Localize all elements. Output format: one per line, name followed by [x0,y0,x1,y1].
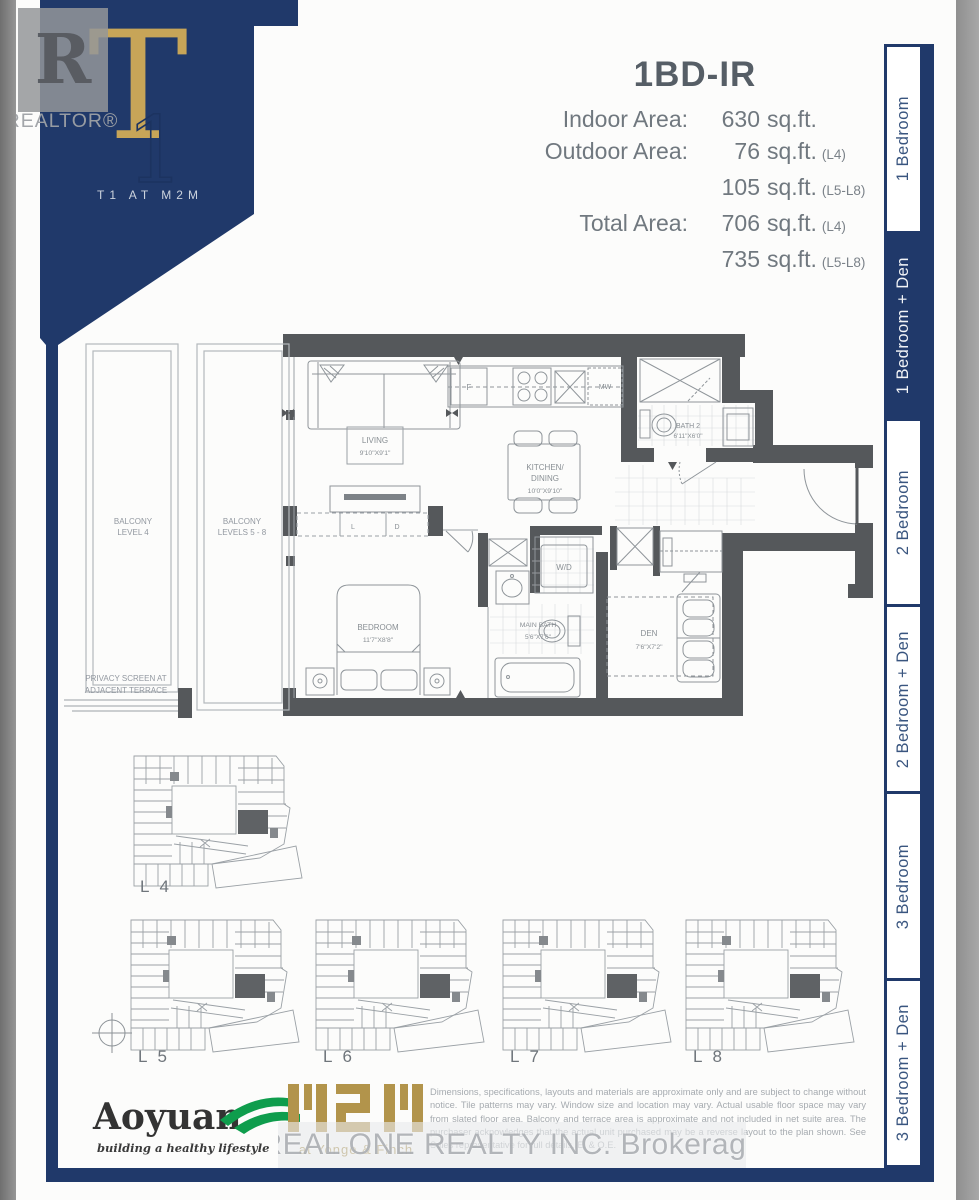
tab-3-bedroom[interactable]: 3 Bedroom [884,791,923,981]
svg-text:11'7"X8'8": 11'7"X8'8" [363,637,394,644]
realtor-label: REALTOR® [0,110,124,133]
compass-icon [92,1013,132,1053]
living-label: LIVING 9'10"X9'1" [347,427,403,464]
main-bath-label: MAIN BATH 5'6"X7'6" [520,622,557,641]
tab-1-bedroom-den[interactable]: 1 Bedroom + Den [884,231,923,421]
frame-bottom [46,1168,934,1182]
svg-text:LIVING: LIVING [362,436,388,445]
keyplan-l6 [316,920,484,1052]
wd-label: W/D [556,563,572,572]
microwave-label: MW [599,384,612,391]
aoyuan-tagline: building a healthy lifestyle [97,1141,269,1155]
keyplan-l4 [134,756,302,888]
floorplan-sheet: F MW KITCHEN/ DINING 10'0"X9'10" L [0,0,979,1200]
area-row-indoor: Indoor Area: 630 sq.ft. [520,103,870,135]
tab-2-bedroom[interactable]: 2 Bedroom [884,418,923,608]
unit-type-tabs: 1 Bedroom 1 Bedroom + Den 2 Bedroom 2 Be… [884,44,923,1168]
keyplan-l8 [686,920,854,1052]
svg-text:BATH 2: BATH 2 [676,423,700,430]
svg-text:MAIN BATH: MAIN BATH [520,622,557,629]
svg-text:L 6: L 6 [323,1047,355,1066]
photo-edge-right [956,0,979,1200]
wardrobe-closet [297,513,478,536]
tab-3-bedroom-den[interactable]: 3 Bedroom + Den [884,978,923,1168]
svg-text:9'10"X9'1": 9'10"X9'1" [360,450,391,457]
area-row-outdoor-l4: Outdoor Area: 76 sq.ft. (L4) [520,135,870,171]
unit-header: 1BD-IR Indoor Area: 630 sq.ft. Outdoor A… [520,55,870,279]
frame-left [46,340,58,1182]
dining-set [508,431,580,513]
svg-text:5'6"X7'6": 5'6"X7'6" [525,634,552,641]
fridge-label: F [467,383,472,392]
closet-letter-d: D [394,524,399,531]
svg-text:LEVELS 5 - 8: LEVELS 5 - 8 [218,528,267,537]
balcony-levels5-8 [197,344,289,710]
den [607,531,722,682]
tab-1-bedroom[interactable]: 1 Bedroom [884,44,923,234]
unit-title: 1BD-IR [520,55,870,95]
svg-text:BALCONY: BALCONY [114,517,153,526]
tv-console [330,486,420,512]
area-row-outdoor-l5l8: 105 sq.ft. (L5-L8) [520,171,870,207]
svg-text:7'6"X7'2": 7'6"X7'2" [635,644,663,651]
svg-text:ADJACENT TERRACE: ADJACENT TERRACE [85,686,167,695]
svg-text:BALCONY: BALCONY [223,517,262,526]
area-row-total-l5l8: 735 sq.ft. (L5-L8) [520,243,870,279]
plan-walls [283,334,873,716]
keyplan-labels: L 4 L 5 L 6 L 7 L 8 [138,877,725,1066]
realtor-logo-watermark: R [18,8,108,112]
kitchen-counter [448,366,623,407]
sofa [308,361,460,429]
den-label: DEN 7'6"X7'2" [635,629,663,651]
balcony-labels: BALCONY LEVEL 4 BALCONY LEVELS 5 - 8 PRI… [85,517,267,695]
area-row-total-l4: Total Area: 706 sq.ft. (L4) [520,207,870,243]
bedroom-label: BEDROOM 11'7"X8'8" [357,623,399,644]
svg-text:L 4: L 4 [140,877,172,896]
bedroom-door [446,531,473,552]
kitchen-label: KITCHEN/ DINING 10'0"X9'10" [526,463,564,495]
brokerage-watermark: REAL ONE REALTY INC. Brokerage [278,1122,746,1168]
photo-edge-left [0,0,16,1200]
hall-closet [617,528,653,565]
svg-text:L 5: L 5 [138,1047,170,1066]
tab-2-bedroom-den[interactable]: 2 Bedroom + Den [884,604,923,794]
realtor-r-icon: R [35,20,92,100]
svg-text:10'0"X9'10": 10'0"X9'10" [528,488,563,495]
svg-text:DEN: DEN [641,629,658,638]
svg-text:6'11"X6'0": 6'11"X6'0" [673,433,703,440]
keyplan-l7 [503,920,671,1052]
entry-door [804,467,857,524]
project-name: T1 AT M2M [97,188,203,202]
svg-text:L 7: L 7 [510,1047,542,1066]
svg-text:DINING: DINING [531,474,559,483]
bath2-label: BATH 2 6'11"X6'0" [673,423,703,440]
svg-text:KITCHEN/: KITCHEN/ [526,463,564,472]
svg-text:L 8: L 8 [693,1047,725,1066]
svg-text:PRIVACY SCREEN AT: PRIVACY SCREEN AT [85,674,166,683]
svg-text:LEVEL 4: LEVEL 4 [117,528,149,537]
keyplan-l5 [131,920,299,1052]
closet-letter-l: L [351,524,355,531]
svg-text:BEDROOM: BEDROOM [357,623,399,632]
